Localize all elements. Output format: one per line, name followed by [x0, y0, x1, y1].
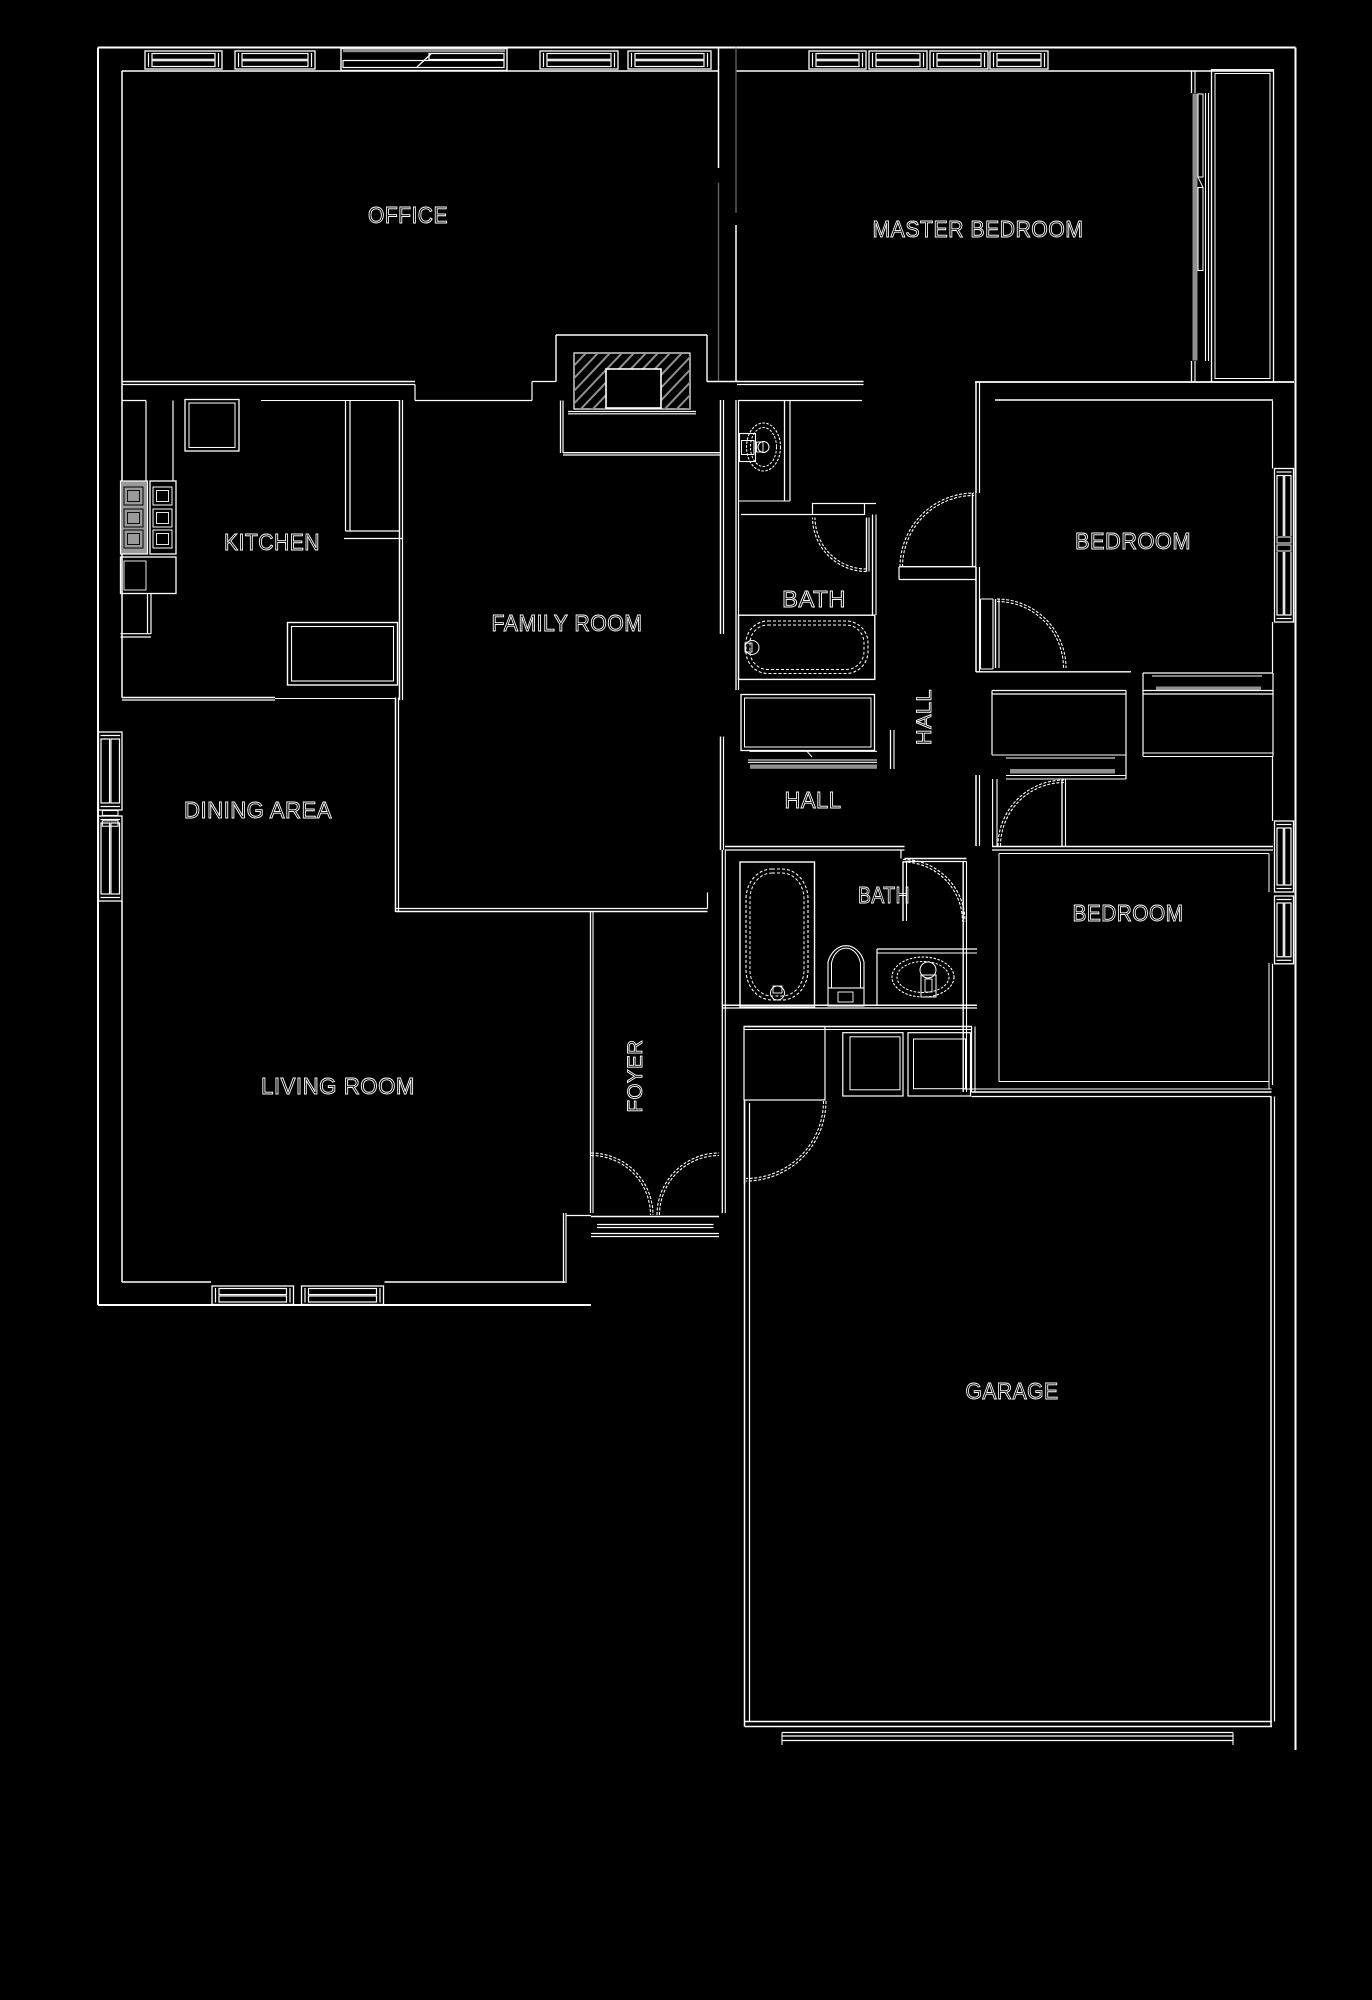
svg-text:HALL: HALL [785, 787, 842, 813]
svg-text:BATH: BATH [782, 586, 846, 612]
svg-text:GARAGE: GARAGE [966, 1378, 1059, 1404]
svg-text:BEDROOM: BEDROOM [1073, 900, 1184, 926]
svg-text:HALL: HALL [913, 689, 936, 745]
svg-text:OFFICE: OFFICE [368, 202, 448, 228]
svg-text:BEDROOM: BEDROOM [1075, 528, 1191, 554]
svg-text:KITCHEN: KITCHEN [224, 529, 320, 555]
svg-text:FAMILY ROOM: FAMILY ROOM [492, 610, 643, 636]
svg-text:DINING AREA: DINING AREA [184, 797, 332, 823]
svg-text:MASTER BEDROOM: MASTER BEDROOM [873, 216, 1084, 242]
svg-text:LIVING ROOM: LIVING ROOM [261, 1073, 415, 1099]
svg-text:FOYER: FOYER [624, 1040, 647, 1113]
svg-text:BATH: BATH [858, 882, 910, 908]
